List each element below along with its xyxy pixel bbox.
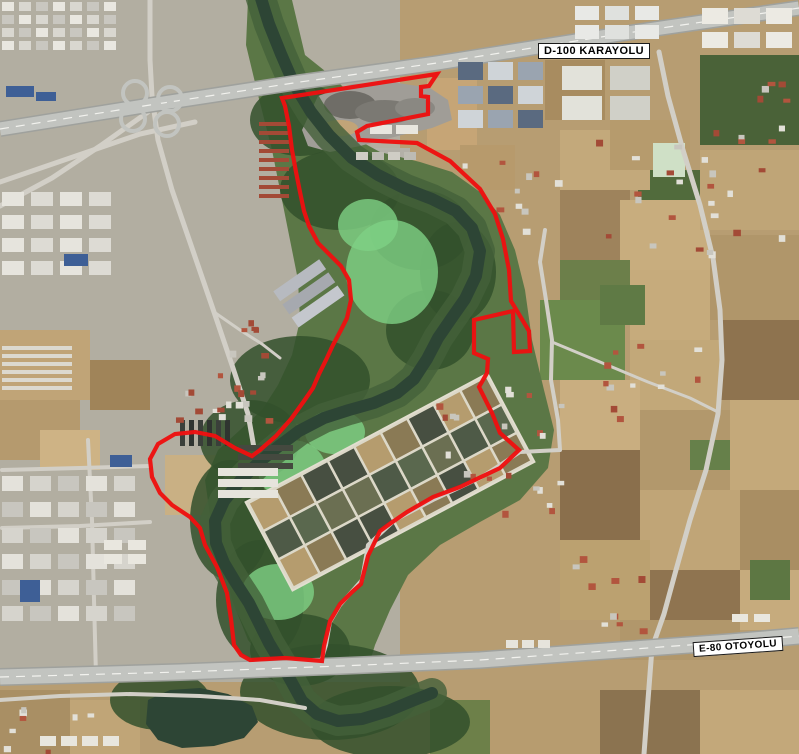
satellite-map: D-100 KARAYOLU E-80 OTOYOLU (0, 0, 799, 754)
satellite-map-canvas (0, 0, 799, 754)
blue-roof-building (110, 455, 132, 467)
blue-roof-building (6, 86, 34, 97)
blue-roof-building (64, 254, 88, 266)
road-label-d100-karayolu: D-100 KARAYOLU (538, 43, 650, 59)
blue-roof-building (20, 580, 40, 602)
blue-roof-building (36, 92, 56, 101)
